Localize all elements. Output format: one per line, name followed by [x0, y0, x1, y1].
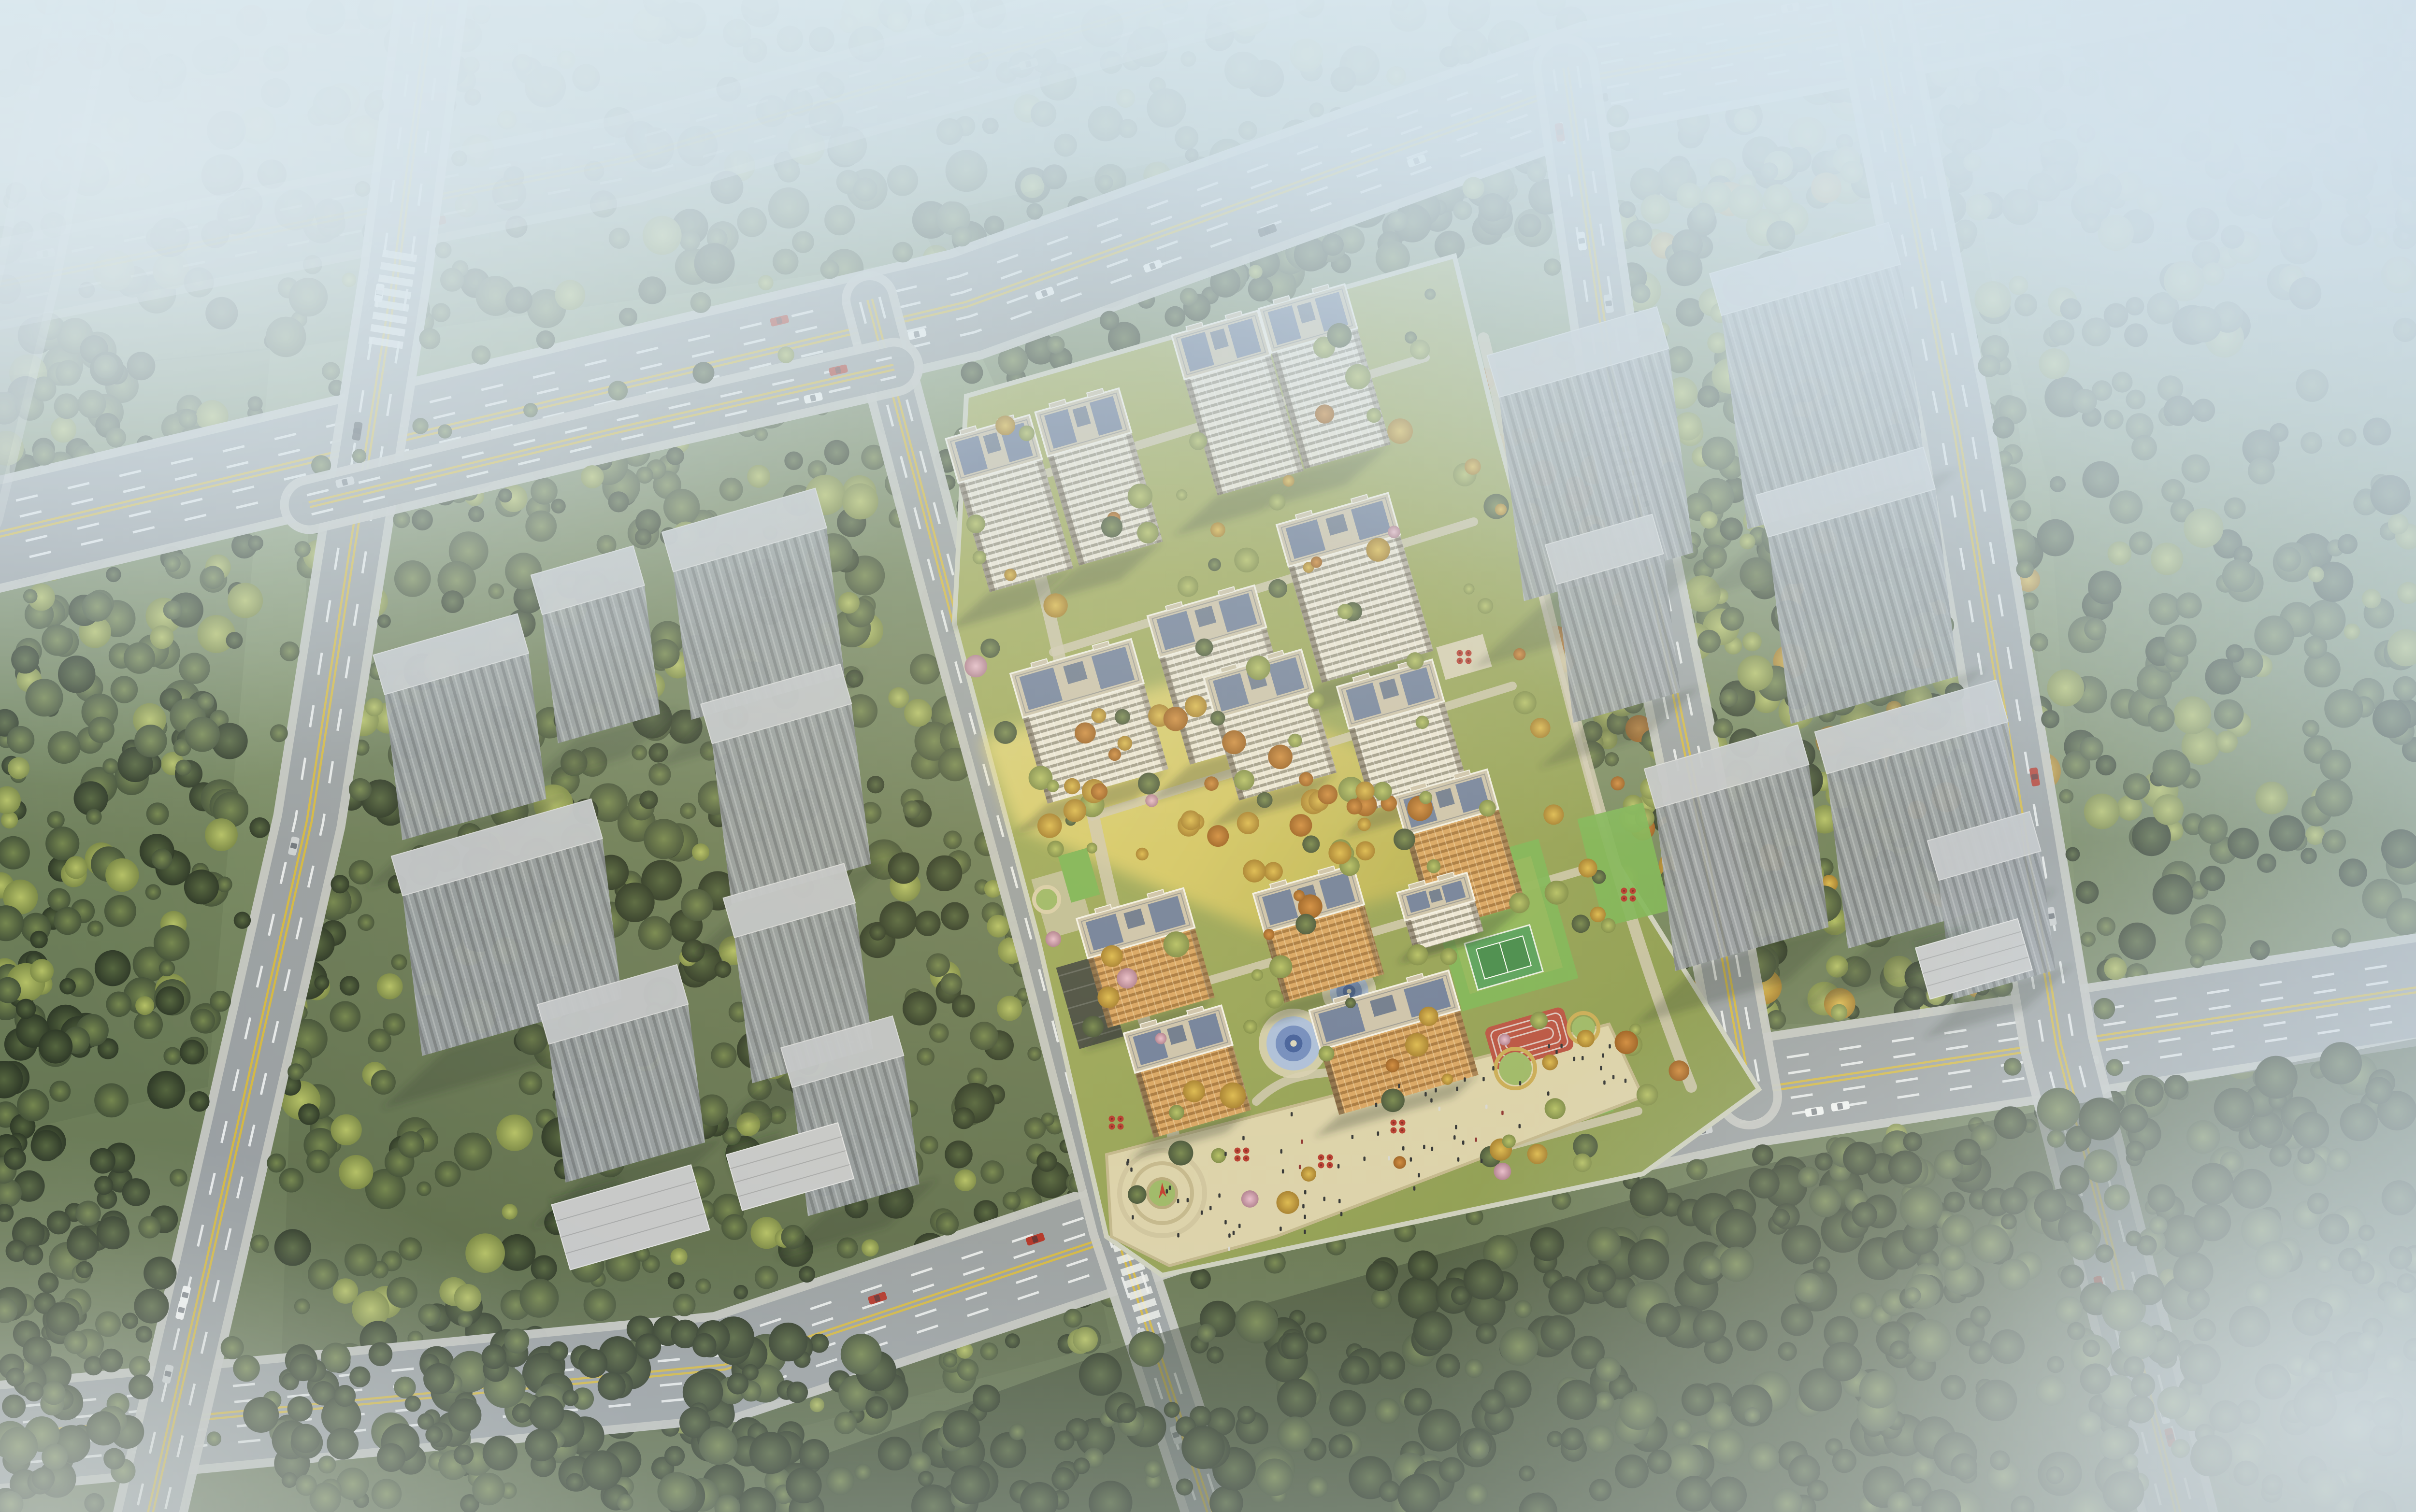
- atmosphere-overlays: [0, 0, 2416, 1512]
- fog-bottom-edge: [0, 0, 2416, 1512]
- aerial-rendering: [0, 0, 2416, 1512]
- aerial-rendering-canvas: [0, 0, 2416, 1512]
